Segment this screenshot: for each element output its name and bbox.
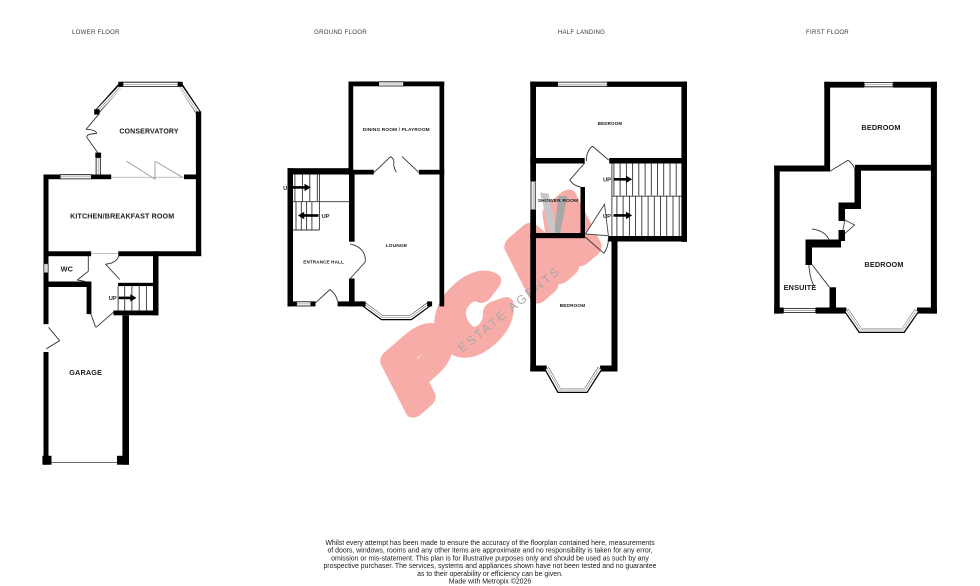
svg-text:LOWER FLOOR: LOWER FLOOR xyxy=(72,29,120,36)
svg-text:of doors, windows, rooms and a: of doors, windows, rooms and any other i… xyxy=(327,548,652,555)
svg-text:BEDROOM: BEDROOM xyxy=(861,123,900,132)
svg-text:WC: WC xyxy=(61,264,74,273)
svg-text:as to their operability or eff: as to their operability or efficiency ca… xyxy=(417,571,563,578)
svg-text:M: M xyxy=(492,186,614,308)
svg-text:LOUNGE: LOUNGE xyxy=(386,243,408,249)
svg-text:UP: UP xyxy=(322,214,330,220)
svg-text:UP: UP xyxy=(603,214,611,220)
svg-text:ENTRANCE HALL: ENTRANCE HALL xyxy=(303,260,344,265)
svg-text:BEDROOM: BEDROOM xyxy=(864,260,903,269)
svg-text:Made with Metropix ©2026: Made with Metropix ©2026 xyxy=(449,578,532,586)
svg-text:ENSUITE: ENSUITE xyxy=(784,283,817,292)
svg-text:UP: UP xyxy=(603,178,611,184)
svg-text:BEDROOM: BEDROOM xyxy=(598,121,623,126)
svg-text:omission or mis-statement. Thi: omission or mis-statement. This plan is … xyxy=(331,555,649,562)
svg-text:UP: UP xyxy=(109,296,117,302)
svg-text:GARAGE: GARAGE xyxy=(69,368,102,377)
svg-text:GROUND FLOOR: GROUND FLOOR xyxy=(314,29,367,36)
svg-text:SHOWER ROOM: SHOWER ROOM xyxy=(538,198,579,204)
svg-text:U: U xyxy=(283,186,287,192)
svg-text:Whilst every attempt has been: Whilst every attempt has been made to en… xyxy=(325,540,655,547)
svg-text:BEDROOM: BEDROOM xyxy=(560,303,586,308)
svg-text:DINING ROOM / PLAYROOM: DINING ROOM / PLAYROOM xyxy=(363,127,430,133)
svg-text:CONSERVATORY: CONSERVATORY xyxy=(119,128,179,135)
svg-text:HALF LANDING: HALF LANDING xyxy=(558,29,605,36)
svg-text:KITCHEN/BREAKFAST ROOM: KITCHEN/BREAKFAST ROOM xyxy=(70,212,174,220)
svg-text:FIRST FLOOR: FIRST FLOOR xyxy=(806,29,849,36)
svg-text:prospective purchaser. The ser: prospective purchaser. The services, sys… xyxy=(323,563,656,570)
